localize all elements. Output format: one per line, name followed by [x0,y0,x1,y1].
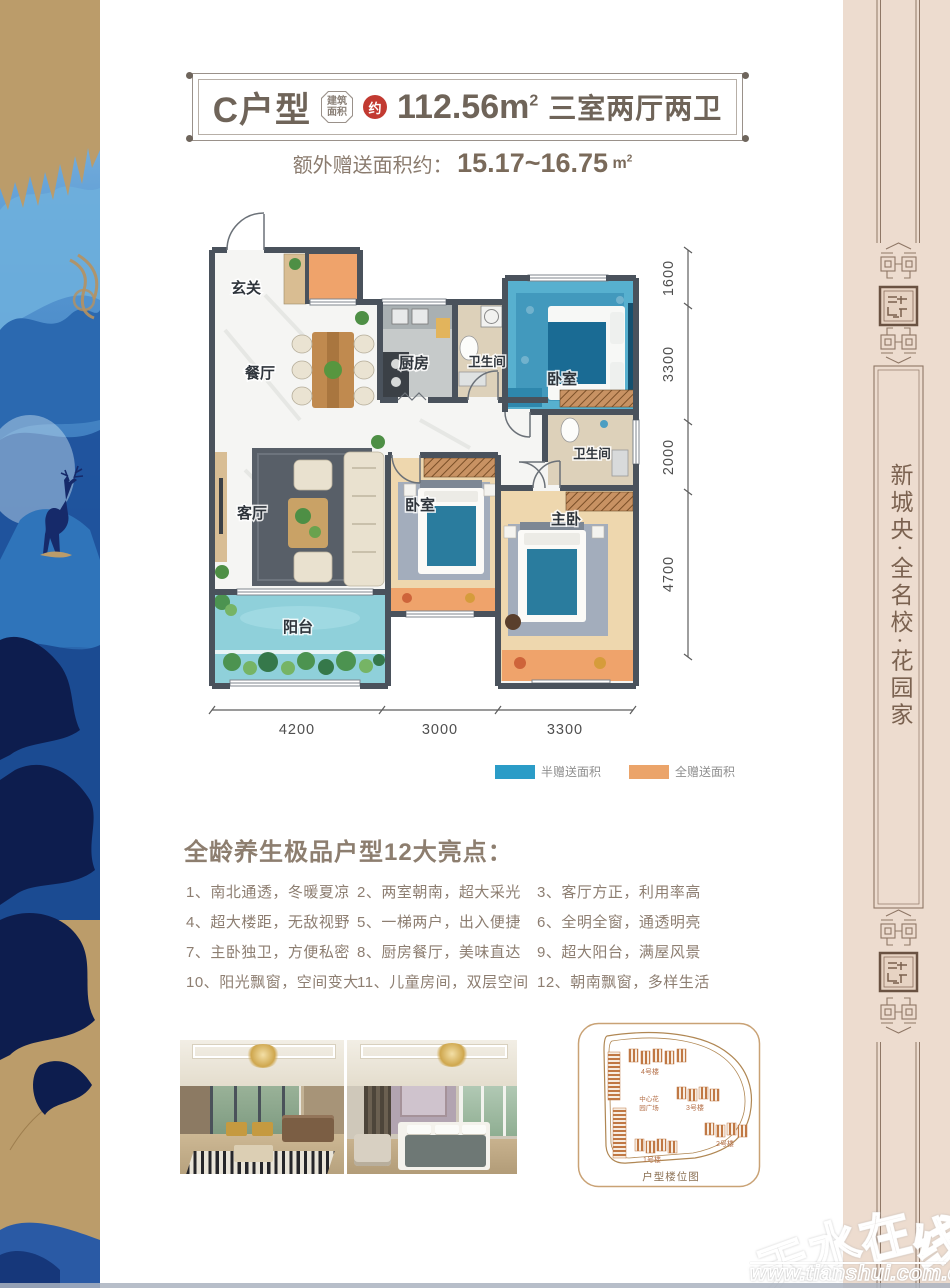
building-label-2: 2号楼 [716,1139,734,1148]
legend-label-full: 全赠送面积 [675,763,735,780]
photo1-armchair [226,1122,247,1137]
photo1-armchair [252,1122,273,1137]
legend-swatch-blue [495,765,535,779]
highlight-item: 7、主卧独卫，方便私密 [186,941,357,962]
highlight-item: 4、超大楼距，无敌视野 [186,911,357,932]
gift-area-top [307,252,360,302]
highlight-item: 8、厨房餐厅，美味直达 [357,941,537,962]
highlight-item: 10、阳光飘窗，空间变大 [186,971,357,992]
highlight-item: 12、朝南飘窗，多样生活 [537,971,771,992]
bonus-unit-m: m [613,155,627,172]
highlight-item: 6、全明全窗，通透明亮 [537,911,771,932]
title-content: C户型 建筑 面积 约 112.56m2 三室两厅两卫 [198,79,737,135]
room-label-bath1: 卫生间 [468,354,506,369]
photo1-ottoman [234,1145,273,1162]
approx-badge: 约 [363,95,387,119]
highlight-item: 2、两室朝南，超大采光 [357,881,537,902]
chandelier-icon [435,1043,469,1067]
highlights-title: 全龄养生极品户型12大亮点： [184,832,513,867]
dim-2000: 2000 [661,439,677,475]
watermark-char: 天 [747,1220,819,1288]
scroll-pin [186,135,193,142]
siteplan-caption: 户型楼位图 [642,1170,700,1183]
dim-4700: 4700 [661,556,677,592]
photo1-left-wall [180,1078,210,1142]
bonus-label: 额外赠送面积约： [293,155,453,177]
bedroom-mid [391,458,496,612]
dim-3300: 3300 [661,346,677,382]
building-label-3: 3号楼 [686,1103,704,1112]
legend: 半赠送面积 全赠送面积 [495,763,735,780]
dim-3000: 3000 [422,722,458,738]
dimension-right [684,247,692,660]
photo2-ceiling [347,1040,517,1086]
area-number: 112.56m [397,88,529,126]
scroll-pin [742,72,749,79]
bonus-value: 15.17~16.75 [457,148,608,178]
room-label-bedroom-north: 卧室 [547,370,577,388]
area-sup: 2 [529,92,538,109]
badge-line2: 面积 [327,107,347,118]
highlight-item: 11、儿童房间，双层空间 [357,971,537,992]
scroll-pin [186,72,193,79]
highlight-item: 1、南北通透，冬暖夏凉 [186,881,357,902]
dim-3300b: 3300 [547,722,583,738]
dim-1600: 1600 [661,260,677,296]
bottom-edge-strip [0,1283,950,1288]
legend-half-gift: 半赠送面积 [495,763,601,780]
layout-desc: 三室两厅两卫 [548,87,722,127]
dim-4200: 4200 [279,722,315,738]
plaza-label-2: 园广场 [639,1103,659,1112]
building-label-4: 4号楼 [641,1067,659,1076]
room-label-master: 主卧 [551,510,581,528]
room-label-entry: 玄关 [231,279,261,297]
poster-page: 新城央·全名校·花园家 C户型 建筑 面积 约 112.56m2 三室两厅两卫 … [0,0,950,1288]
title-scroll-box: C户型 建筑 面积 约 112.56m2 三室两厅两卫 [192,73,743,141]
highlight-item: 9、超大阳台，满屋风景 [537,941,771,962]
photo-living-room [180,1040,344,1174]
legend-label-half: 半赠送面积 [541,763,601,780]
highlight-item: 5、一梯两户，出入便捷 [357,911,537,932]
photo1-sofa [282,1115,334,1142]
photo2-armchair [354,1134,391,1166]
unit-name: C户型 [213,82,311,133]
dimension-bottom [209,706,636,714]
room-label-kitchen: 厨房 [399,354,429,372]
room-label-bath2: 卫生间 [573,446,611,461]
highlights-list: 1、南北通透，冬暖夏凉 2、两室朝南，超大采光 3、客厅方正，利用率高 4、超大… [186,881,771,992]
area-type-badge: 建筑 面积 [321,91,353,123]
chandelier-icon [246,1044,280,1068]
dimension-bottom-labels: 4200 3000 3300 [279,722,583,738]
plaza-label-1: 中心花 [639,1094,659,1103]
bonus-unit-sup: 2 [627,154,633,165]
badge-line1: 建筑 [327,96,347,107]
room-label-living: 客厅 [236,504,267,522]
room-label-bedroom-mid: 卧室 [405,496,435,514]
scroll-pin [742,135,749,142]
left-art-painting [0,0,100,1288]
bedroom-north [508,281,636,409]
building-label-1: 1号楼 [643,1155,661,1164]
floorplan: 玄关 餐厅 厨房 卫生间 卧室 卫生间 客厅 卧室 主卧 阳台 1600 330… [178,198,710,750]
area-value: 112.56m2 [397,88,538,127]
photo-bedroom [347,1040,517,1174]
sidebar-slogan: 新城央·全名校·花园家 [884,446,914,746]
dimension-right-labels: 1600 3300 2000 4700 [661,260,677,592]
room-label-balcony: 阳台 [283,618,313,636]
balcony-area [214,594,386,684]
room-label-dining: 餐厅 [245,364,275,382]
photo2-bed [398,1122,490,1170]
legend-full-gift: 全赠送面积 [629,763,735,780]
siteplan: 4号楼 3号楼 2号楼 1号楼 中心花 园广场 户型楼位图 [577,1022,761,1188]
legend-swatch-orange [629,765,669,779]
highlight-item: 3、客厅方正，利用率高 [537,881,771,902]
bonus-area-line: 额外赠送面积约： 15.17~16.75 m2 [180,148,745,179]
bonus-unit: m2 [613,155,633,172]
